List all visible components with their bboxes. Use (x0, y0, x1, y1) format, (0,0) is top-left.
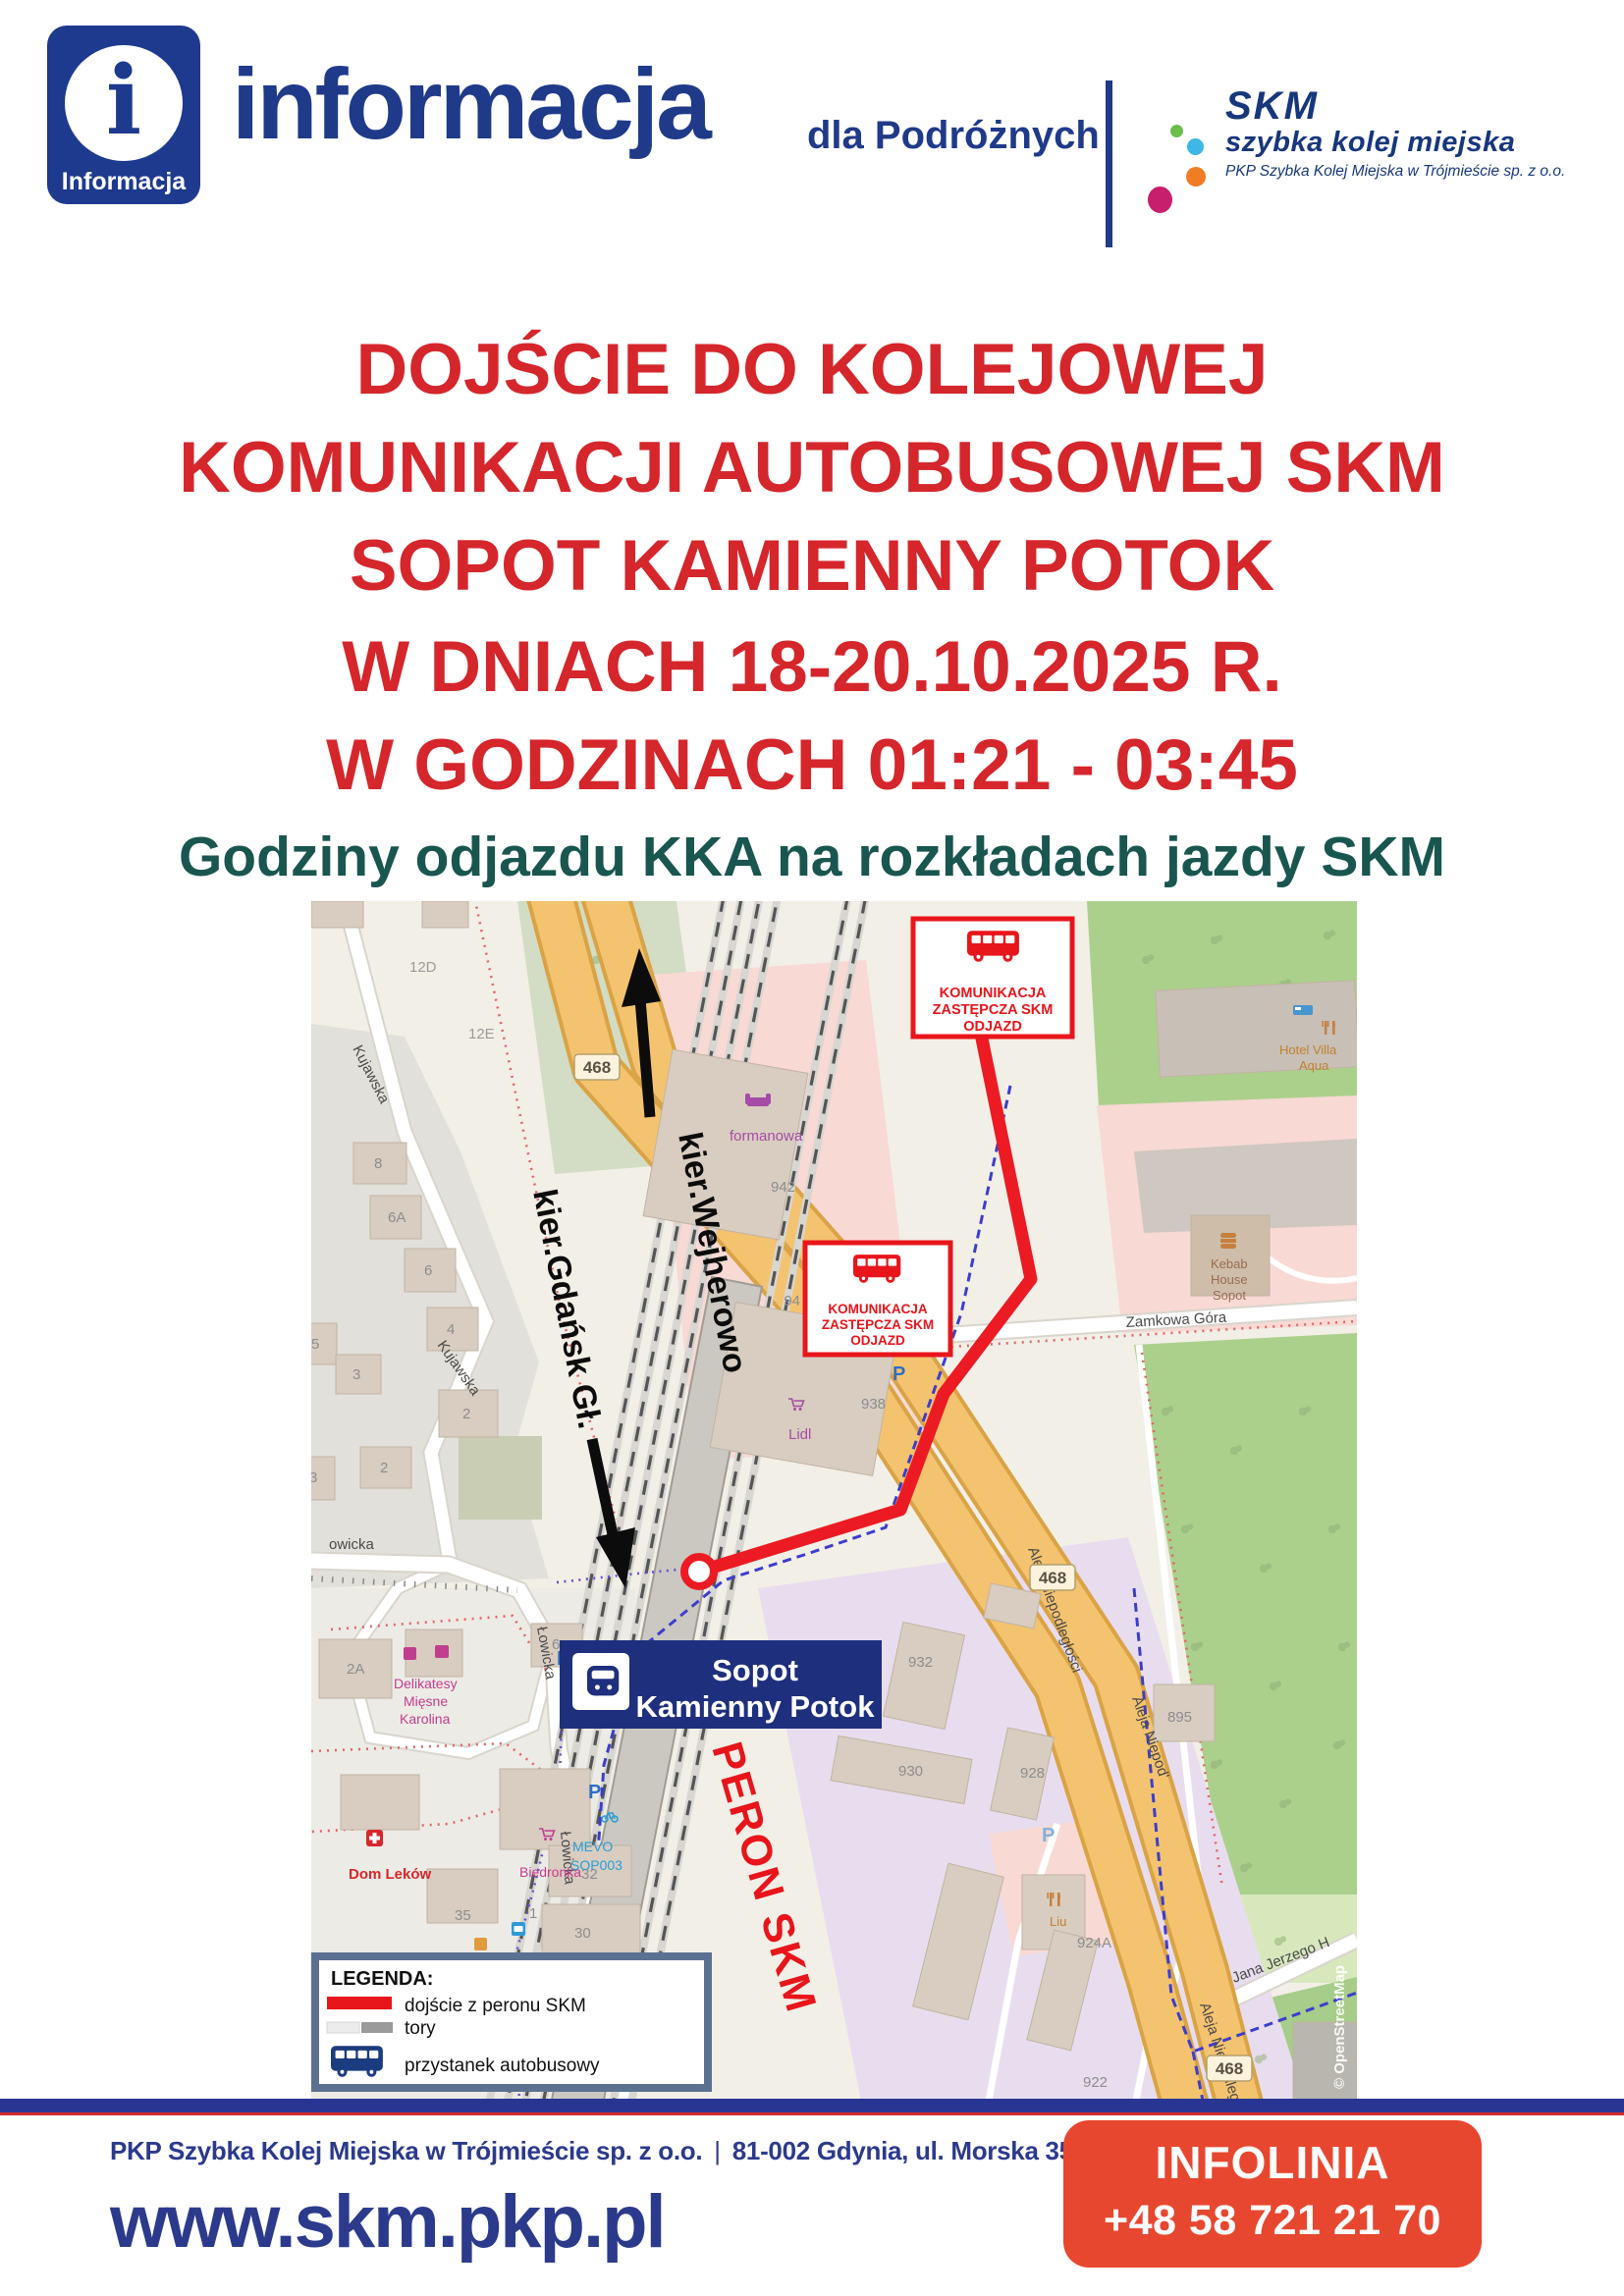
station-name-line2: Kamienny Potok (636, 1689, 876, 1724)
poi-label: Liu (1050, 1914, 1066, 1929)
replacement-stop-box-2: KOMUNIKACJA ZASTĘPCZA SKM ODJAZD (805, 1243, 950, 1355)
poi-label: House (1211, 1272, 1248, 1287)
legend-track-sample-light (327, 2022, 359, 2033)
skm-dot-magenta-icon (1148, 187, 1172, 213)
poi-label: formanowa (730, 1128, 803, 1145)
building-number: 6A (388, 1209, 406, 1226)
replacement-stop-box-1: KOMUNIKACJA ZASTĘPCZA SKM ODJAZD (913, 919, 1072, 1037)
building-number: 3 (352, 1366, 360, 1383)
shield-label: 468 (1216, 2059, 1243, 2078)
building-number: 5 (311, 1336, 319, 1353)
building-number: 8 (374, 1155, 382, 1172)
poi-label: Delikatesy (394, 1676, 458, 1691)
infoline-box: INFOLINIA +48 58 721 21 70 (1063, 2120, 1482, 2268)
skm-dot-blue-icon (1187, 138, 1204, 155)
skm-name: SKM (1225, 86, 1565, 126)
parking-icon: P (893, 1363, 905, 1385)
building-number: 2A (347, 1661, 364, 1678)
infoline-label: INFOLINIA (1063, 2136, 1482, 2189)
poi-label: Dom Leków (349, 1866, 432, 1883)
osm-attribution: © OpenStreetMap (1331, 1965, 1348, 2089)
station-name-line1: Sopot (712, 1653, 798, 1687)
building-number: 94 (784, 1293, 800, 1309)
parking-icon: P (588, 1782, 601, 1803)
poi-label: Mięsne (404, 1693, 448, 1709)
legend-route-sample (327, 1997, 392, 2009)
skm-company: PKP Szybka Kolej Miejska w Trójmieście s… (1225, 164, 1565, 180)
skm-tagline: szybka kolej miejska (1225, 129, 1565, 157)
title-line-4: W DNIACH 18-20.10.2025 R. (0, 631, 1624, 703)
map-legend: LEGENDA: dojście z peronu SKM tory przys… (315, 1956, 708, 2088)
footer-address: 81-002 Gdynia, ul. Morska 350A (732, 2136, 1106, 2165)
title-line-3: SOPOT KAMIENNY POTOK (0, 530, 1624, 602)
poi-label: Hotel Villa (1279, 1042, 1337, 1057)
building-number: 2 (380, 1460, 388, 1476)
footer-website: www.skm.pkp.pl (110, 2179, 665, 2265)
shop-icon (435, 1645, 449, 1658)
station-sign: Sopot Kamienny Potok (560, 1640, 882, 1729)
poi-label: Sopot (1213, 1288, 1246, 1303)
poi-label: Aqua (1299, 1058, 1329, 1073)
bus-stop-mini-icon (512, 1922, 525, 1936)
title-line-2: KOMUNIKACJI AUTOBUSOWEJ SKM (0, 432, 1624, 504)
box-label: ZASTĘPCZA SKM (933, 1002, 1054, 1018)
shop-icon (404, 1647, 416, 1660)
pharmacy-icon (366, 1830, 383, 1846)
olive-patch (459, 1436, 542, 1520)
legend-item-label: dojście z peronu SKM (405, 1996, 586, 2016)
poi-label: SOP003 (570, 1857, 623, 1873)
building-number: 2 (462, 1406, 470, 1422)
legend-item-label: przystanek autobusowy (405, 2056, 600, 2076)
building-number: 895 (1167, 1709, 1192, 1726)
skm-dot-green-icon (1170, 125, 1183, 137)
building-number: 35 (455, 1907, 471, 1924)
building-number: 4 (447, 1321, 455, 1338)
hotel-bed-icon (1293, 1005, 1313, 1015)
building-number: 942 (771, 1179, 795, 1196)
box-label: ODJAZD (963, 1019, 1022, 1035)
footer-separator: | (714, 2136, 720, 2165)
bakery-icon (474, 1938, 487, 1950)
legend-title: LEGENDA: (331, 1968, 433, 1990)
footer-company: PKP Szybka Kolej Miejska w Trójmieście s… (110, 2136, 702, 2165)
box-label: KOMUNIKACJA (940, 986, 1047, 1001)
building-number: 922 (1083, 2074, 1108, 2091)
poi-label: Karolina (400, 1711, 451, 1727)
poster: i Informacja informacja dla Podróżnych S… (0, 0, 1624, 2296)
building-number: 6 (424, 1262, 432, 1279)
building-number: 3 (311, 1469, 317, 1486)
burger-icon (1220, 1233, 1236, 1249)
poi-label: Lidl (788, 1426, 811, 1443)
building-number: 928 (1020, 1765, 1045, 1782)
footer-company-line: PKP Szybka Kolej Miejska w Trójmieście s… (110, 2136, 1105, 2166)
building-number: 924A (1077, 1935, 1111, 1951)
building-number: 1 (529, 1905, 537, 1922)
train-icon (587, 1666, 619, 1695)
building-number: 930 (898, 1763, 923, 1780)
info-icon-caption: Informacja (47, 168, 200, 196)
subtitle: Godziny odjazdu KKA na rozkładach jazdy … (0, 829, 1624, 885)
parking-icon: P (1042, 1825, 1055, 1846)
shield-label: 468 (1039, 1569, 1066, 1587)
box-label: ODJAZD (850, 1333, 905, 1348)
infoline-number: +48 58 721 21 70 (1063, 2197, 1482, 2245)
building-number: 932 (908, 1654, 933, 1671)
area-label: 12E (468, 1026, 495, 1042)
info-i-letter: i (47, 43, 200, 159)
shield-label: 468 (583, 1058, 611, 1077)
area-label: 12D (409, 959, 437, 976)
legend-item-label: tory (405, 2018, 436, 2039)
skm-dot-orange-icon (1186, 167, 1206, 187)
brand-title: informacja (232, 47, 709, 162)
informacja-logo: i Informacja (47, 26, 200, 204)
skm-logo: SKM szybka kolej miejska PKP Szybka Kole… (1225, 86, 1565, 180)
footer-divider (0, 2099, 1624, 2115)
poi-label: MEVO (572, 1839, 613, 1854)
title-line-5: W GODZINACH 01:21 - 03:45 (0, 729, 1624, 801)
box-label: KOMUNIKACJA (828, 1302, 928, 1316)
poi-label: Kebab (1211, 1256, 1248, 1271)
box-label: ZASTĘPCZA SKM (822, 1317, 934, 1332)
map: 12D 12E 8 6A 6 4 5 3 2 2 3 2A 6 942 94 9… (311, 901, 1357, 2101)
brand-subtitle: dla Podróżnych (807, 114, 1100, 158)
street-label: owicka (329, 1536, 375, 1553)
building-number: 30 (574, 1925, 591, 1942)
route-start-marker (684, 1557, 714, 1586)
building-number: 938 (861, 1396, 886, 1413)
title-line-1: DOJŚCIE DO KOLEJOWEJ (0, 334, 1624, 405)
header-divider (1106, 80, 1112, 247)
legend-track-sample-dark (361, 2022, 393, 2033)
